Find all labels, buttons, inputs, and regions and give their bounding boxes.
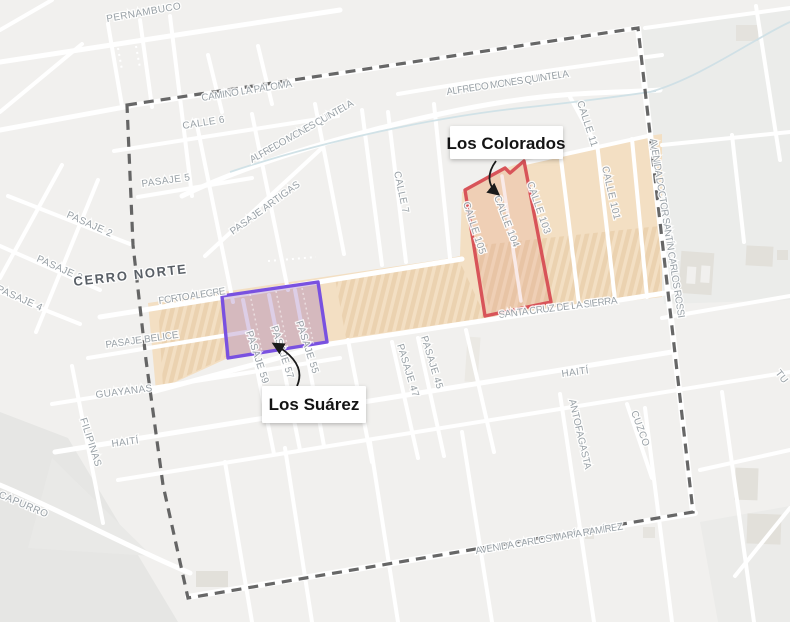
building: [777, 250, 788, 260]
los-colorados-label: Los Colorados: [446, 134, 565, 153]
building: [679, 251, 715, 295]
map-canvas[interactable]: PERNAMBUCO CAMINO LA PALOMA ALFREDO MONE…: [0, 0, 790, 622]
building: [736, 25, 758, 41]
building: [745, 245, 773, 266]
building: [196, 571, 228, 587]
building: [643, 527, 655, 538]
los-suarez-label: Los Suárez: [269, 395, 360, 414]
